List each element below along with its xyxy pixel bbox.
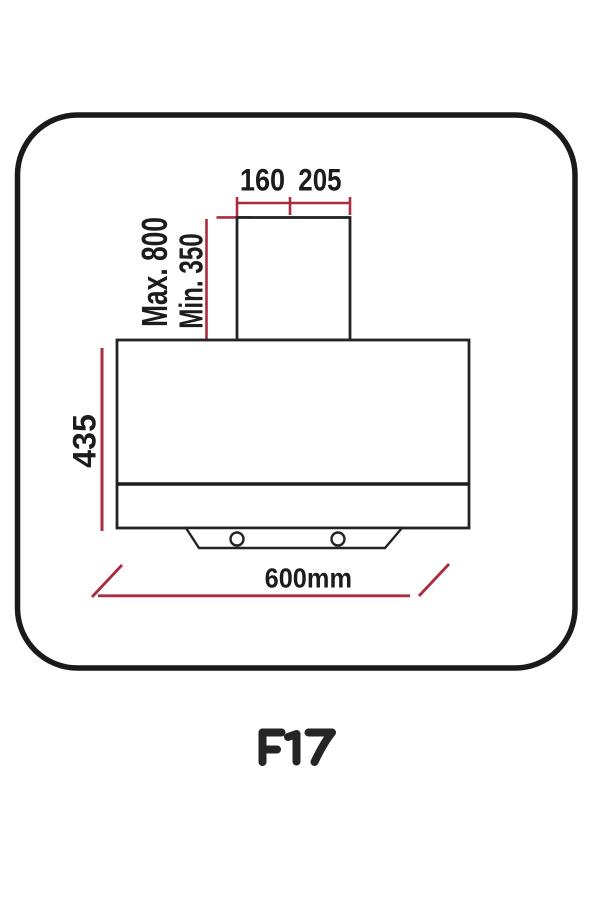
- svg-text:205: 205: [298, 163, 341, 198]
- svg-text:160: 160: [240, 162, 285, 197]
- svg-text:Max. 800: Max. 800: [134, 217, 175, 327]
- svg-text:Min. 350: Min. 350: [174, 233, 211, 329]
- svg-text:600mm: 600mm: [265, 562, 352, 593]
- svg-text:435: 435: [66, 414, 102, 468]
